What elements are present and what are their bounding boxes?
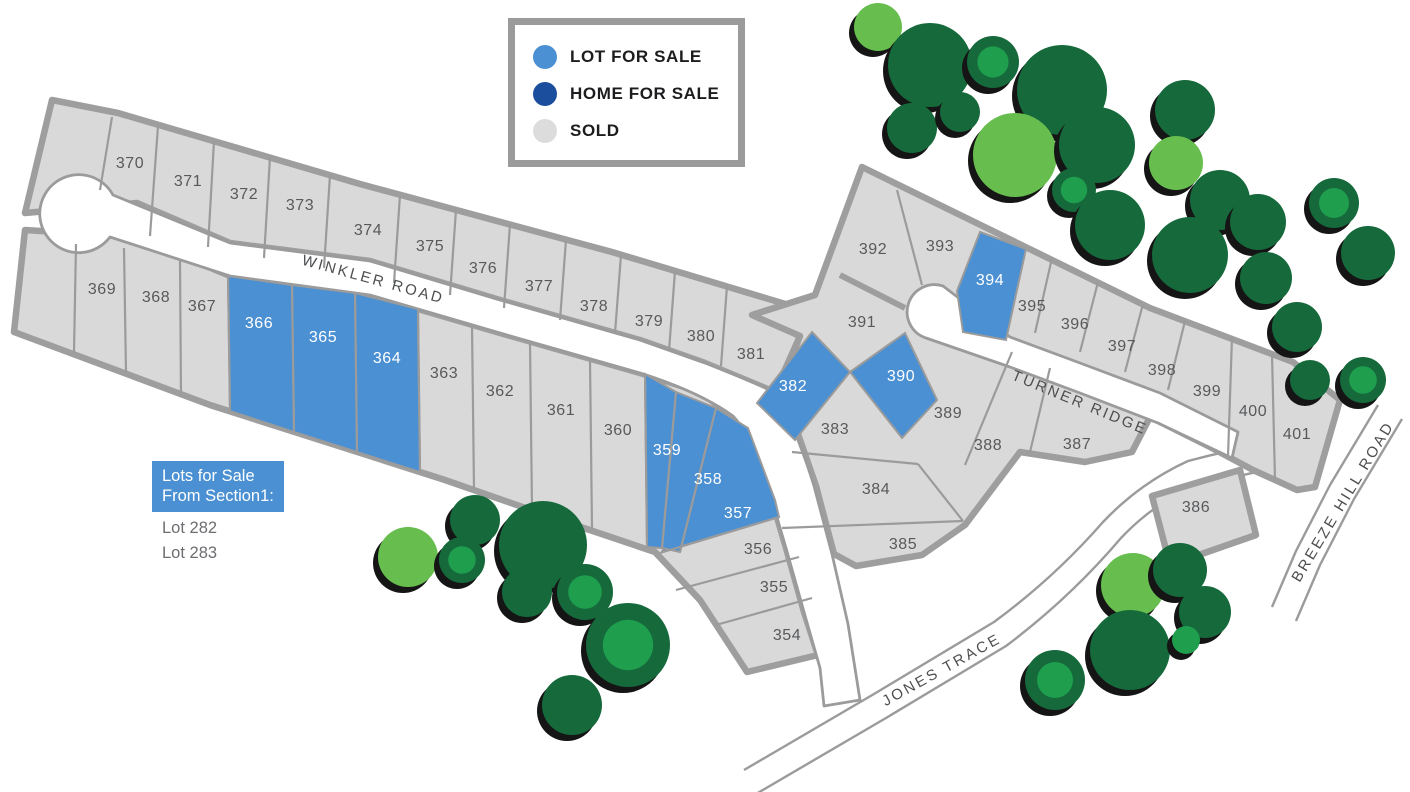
section-note-header: Lots for Sale From Section1: <box>152 461 284 512</box>
lot-label-361[interactable]: 361 <box>547 402 575 419</box>
lot-label-356[interactable]: 356 <box>744 541 772 558</box>
tree-icon <box>1335 357 1386 409</box>
lot-label-376[interactable]: 376 <box>469 260 497 277</box>
lot-label-358[interactable]: 358 <box>694 471 722 488</box>
note-title-line1: Lots for Sale <box>162 466 276 486</box>
tree-icon <box>1150 80 1215 146</box>
legend-label-home-for-sale: HOME FOR SALE <box>570 84 719 104</box>
lot-label-391[interactable]: 391 <box>848 314 876 331</box>
lot-label-401[interactable]: 401 <box>1283 426 1311 443</box>
lot-label-359[interactable]: 359 <box>653 442 681 459</box>
lot-label-362[interactable]: 362 <box>486 383 514 400</box>
lot-label-370[interactable]: 370 <box>116 155 144 172</box>
tree-icon <box>1336 226 1395 286</box>
lot-label-395[interactable]: 395 <box>1018 298 1046 315</box>
legend-row-sold: SOLD <box>533 112 738 149</box>
lot-label-385[interactable]: 385 <box>889 536 917 553</box>
tree-icon <box>537 675 602 741</box>
lot-label-371[interactable]: 371 <box>174 173 202 190</box>
lot-label-380[interactable]: 380 <box>687 328 715 345</box>
tree-icon <box>1167 626 1200 660</box>
lot-label-378[interactable]: 378 <box>580 298 608 315</box>
lot-label-363[interactable]: 363 <box>430 365 458 382</box>
lot-shape-365[interactable] <box>292 285 357 452</box>
lot-label-369[interactable]: 369 <box>88 281 116 298</box>
tree-icon <box>1304 178 1359 234</box>
lot-label-365[interactable]: 365 <box>309 329 337 346</box>
lot-label-364[interactable]: 364 <box>373 350 401 367</box>
lot-label-374[interactable]: 374 <box>354 222 382 239</box>
tree-icon <box>1085 610 1170 696</box>
tree-icon <box>373 527 438 593</box>
tree-icon <box>434 537 485 589</box>
lot-label-372[interactable]: 372 <box>230 186 258 203</box>
lot-label-392[interactable]: 392 <box>859 241 887 258</box>
lot-label-387[interactable]: 387 <box>1063 436 1091 453</box>
jones-trace-label: JONES TRACE <box>879 630 1004 710</box>
lot-label-393[interactable]: 393 <box>926 238 954 255</box>
lot-label-367[interactable]: 367 <box>188 298 216 315</box>
legend: LOT FOR SALE HOME FOR SALE SOLD <box>508 18 745 167</box>
lot-label-366[interactable]: 366 <box>245 315 273 332</box>
lot-for-sale-swatch-icon <box>533 45 557 69</box>
lot-label-400[interactable]: 400 <box>1239 403 1267 420</box>
tree-icon <box>962 36 1019 94</box>
site-plan-page: { "title": "Subdivision lot availability… <box>0 0 1410 792</box>
tree-icon <box>1235 252 1292 310</box>
legend-row-home-for-sale: HOME FOR SALE <box>533 75 738 112</box>
tree-icon <box>968 113 1057 203</box>
sold-swatch-icon <box>533 119 557 143</box>
lot-divider <box>180 260 181 397</box>
lot-label-379[interactable]: 379 <box>635 313 663 330</box>
lot-label-397[interactable]: 397 <box>1108 338 1136 355</box>
lot-label-389[interactable]: 389 <box>934 405 962 422</box>
lot-label-368[interactable]: 368 <box>142 289 170 306</box>
lot-label-386[interactable]: 386 <box>1182 499 1210 516</box>
lot-label-394[interactable]: 394 <box>976 272 1004 289</box>
section-note: Lots for Sale From Section1: Lot 282 Lot… <box>152 461 372 562</box>
lot-label-390[interactable]: 390 <box>887 368 915 385</box>
note-lot-282: Lot 282 <box>162 519 372 537</box>
lot-label-373[interactable]: 373 <box>286 197 314 214</box>
tree-icon <box>1267 302 1322 358</box>
lot-label-360[interactable]: 360 <box>604 422 632 439</box>
lot-label-388[interactable]: 388 <box>974 437 1002 454</box>
lot-label-398[interactable]: 398 <box>1148 362 1176 379</box>
tree-icon <box>882 103 937 159</box>
lot-label-396[interactable]: 396 <box>1061 316 1089 333</box>
legend-label-sold: SOLD <box>570 121 620 141</box>
legend-label-lot-for-sale: LOT FOR SALE <box>570 47 702 67</box>
lot-label-384[interactable]: 384 <box>862 481 890 498</box>
legend-row-lot-for-sale: LOT FOR SALE <box>533 38 738 75</box>
lot-label-399[interactable]: 399 <box>1193 383 1221 400</box>
lot-label-381[interactable]: 381 <box>737 346 765 363</box>
lot-label-357[interactable]: 357 <box>724 505 752 522</box>
note-title-line2: From Section1: <box>162 486 276 506</box>
note-lot-283: Lot 283 <box>162 544 372 562</box>
lot-label-377[interactable]: 377 <box>525 278 553 295</box>
lot-shape-366[interactable] <box>228 276 294 432</box>
lot-label-355[interactable]: 355 <box>760 579 788 596</box>
lot-label-354[interactable]: 354 <box>773 627 801 644</box>
lot-shape-364[interactable] <box>355 293 420 472</box>
lot-label-375[interactable]: 375 <box>416 238 444 255</box>
tree-icon <box>1147 217 1228 299</box>
lot-label-383[interactable]: 383 <box>821 421 849 438</box>
tree-icon <box>1020 650 1085 716</box>
lot-label-382[interactable]: 382 <box>779 378 807 395</box>
home-for-sale-swatch-icon <box>533 82 557 106</box>
